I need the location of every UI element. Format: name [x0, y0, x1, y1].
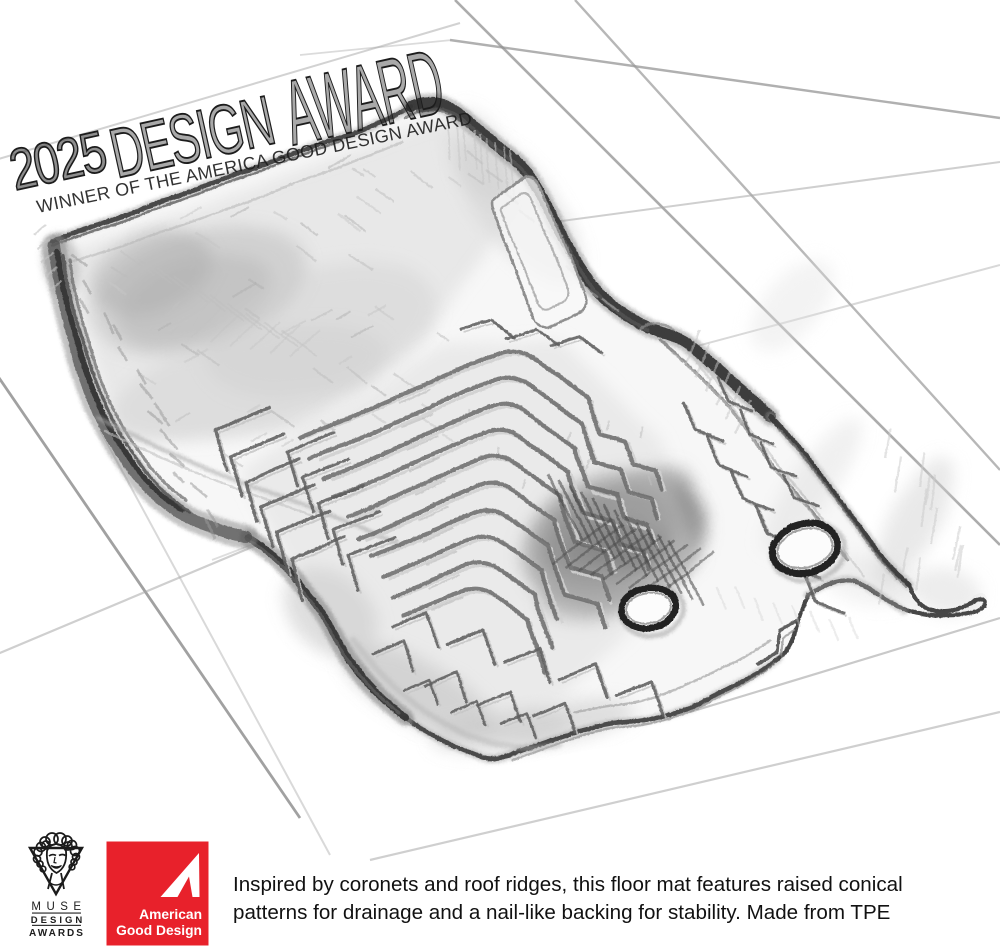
svg-text:MUSE: MUSE: [31, 901, 86, 913]
svg-text:American: American: [139, 907, 202, 922]
svg-text:DESIGN: DESIGN: [31, 915, 85, 926]
svg-text:Good Design: Good Design: [116, 923, 202, 938]
svg-text:patterns for drainage and a na: patterns for drainage and a nail-like ba…: [233, 901, 890, 924]
svg-text:AWARDS: AWARDS: [29, 928, 85, 939]
svg-text:Inspired by coronets and roof: Inspired by coronets and roof ridges, th…: [233, 873, 903, 896]
